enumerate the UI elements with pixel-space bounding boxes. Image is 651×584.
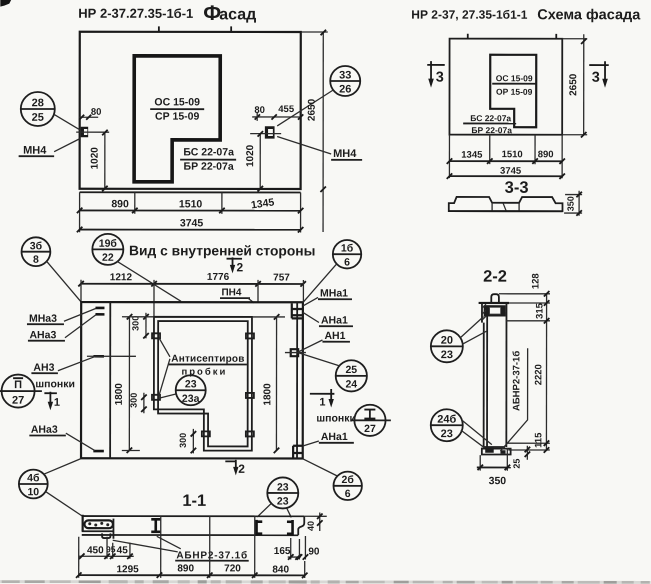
svg-text:315: 315	[534, 302, 545, 319]
svg-text:350: 350	[489, 475, 507, 487]
svg-text:2220: 2220	[533, 364, 544, 385]
svg-text:Антисептиров: Антисептиров	[171, 354, 244, 365]
svg-text:1б: 1б	[341, 243, 354, 255]
svg-text:1345: 1345	[461, 150, 483, 161]
svg-text:АБНР2-37-1б: АБНР2-37-1б	[511, 351, 522, 411]
svg-text:МНа1: МНа1	[320, 287, 348, 299]
svg-text:45: 45	[117, 545, 129, 556]
svg-text:2-2: 2-2	[483, 268, 507, 286]
svg-text:2: 2	[238, 462, 245, 476]
svg-text:4б: 4б	[27, 472, 40, 484]
svg-text:СР 15-09: СР 15-09	[155, 111, 200, 123]
svg-text:БС 22-07а: БС 22-07а	[183, 146, 234, 158]
svg-text:24б: 24б	[437, 414, 456, 426]
svg-text:1510: 1510	[179, 198, 203, 210]
svg-text:НР 2-37, 27.35-1б1-1: НР 2-37, 27.35-1б1-1	[411, 8, 527, 22]
svg-text:1510: 1510	[502, 149, 523, 160]
svg-text:ОР 15-09: ОР 15-09	[496, 87, 533, 97]
svg-text:АНа3: АНа3	[31, 424, 58, 436]
svg-text:3: 3	[592, 70, 600, 86]
svg-text:АН1: АН1	[324, 330, 345, 342]
svg-text:128: 128	[531, 273, 542, 289]
svg-text:890: 890	[177, 563, 194, 574]
svg-text:115: 115	[533, 432, 544, 448]
svg-text:ПН4: ПН4	[221, 287, 241, 298]
svg-text:ОС 15-09: ОС 15-09	[496, 73, 533, 83]
svg-text:840: 840	[272, 564, 289, 575]
svg-text:2: 2	[237, 260, 244, 274]
svg-text:1020: 1020	[245, 144, 256, 167]
svg-text:20: 20	[441, 335, 453, 347]
svg-text:1800: 1800	[114, 383, 125, 406]
svg-text:3745: 3745	[500, 166, 522, 177]
svg-text:23: 23	[277, 495, 289, 507]
svg-text:МН4: МН4	[333, 148, 357, 160]
svg-text:АН3: АН3	[33, 362, 54, 374]
svg-text:6: 6	[345, 488, 351, 500]
svg-text:90: 90	[308, 546, 320, 557]
svg-text:757: 757	[273, 272, 290, 283]
svg-text:23: 23	[185, 378, 197, 390]
svg-text:720: 720	[224, 563, 241, 574]
svg-text:27: 27	[364, 423, 376, 435]
svg-text:3б: 3б	[30, 240, 43, 252]
svg-text:2650: 2650	[568, 73, 579, 96]
svg-text:П: П	[14, 379, 22, 391]
svg-text:25: 25	[512, 459, 522, 469]
svg-text:23а: 23а	[182, 393, 200, 405]
svg-text:шпонки: шпонки	[35, 378, 75, 390]
svg-text:300: 300	[130, 316, 140, 331]
svg-text:2б: 2б	[342, 474, 355, 486]
svg-text:1212: 1212	[110, 272, 133, 283]
svg-text:БР 22-07а: БР 22-07а	[471, 125, 512, 135]
svg-text:23: 23	[441, 428, 453, 440]
svg-text:асад: асад	[219, 6, 256, 23]
svg-text:1776: 1776	[207, 272, 230, 283]
svg-text:350: 350	[566, 196, 576, 211]
svg-text:1345: 1345	[250, 196, 275, 211]
svg-text:23: 23	[441, 349, 453, 361]
svg-text:3: 3	[436, 70, 444, 86]
svg-text:1020: 1020	[90, 147, 101, 170]
svg-text:455: 455	[278, 104, 295, 115]
svg-text:10: 10	[27, 486, 39, 498]
svg-text:АНа1: АНа1	[321, 314, 348, 326]
svg-text:БР 22-07а: БР 22-07а	[184, 161, 234, 173]
svg-text:1-1: 1-1	[182, 492, 206, 510]
svg-text:24: 24	[345, 379, 357, 391]
svg-text:МН4: МН4	[23, 145, 47, 157]
svg-text:Вид с внутренней стороны: Вид с внутренней стороны	[129, 243, 315, 258]
svg-text:25: 25	[32, 112, 44, 124]
svg-text:450: 450	[87, 545, 104, 556]
svg-text:2650: 2650	[307, 98, 318, 121]
svg-text:АБНР2-37.1б: АБНР2-37.1б	[176, 549, 248, 561]
svg-text:890: 890	[538, 149, 554, 160]
svg-text:27: 27	[12, 395, 24, 407]
svg-text:3745: 3745	[180, 217, 204, 229]
svg-text:33: 33	[339, 70, 351, 82]
svg-text:23: 23	[277, 481, 289, 493]
svg-text:28: 28	[32, 97, 44, 109]
svg-text:25: 25	[345, 364, 357, 376]
svg-text:300: 300	[178, 433, 188, 448]
svg-text:890: 890	[111, 198, 129, 210]
svg-text:6: 6	[344, 257, 350, 269]
svg-text:БС 22-07а: БС 22-07а	[470, 113, 511, 123]
svg-text:8: 8	[33, 254, 39, 266]
svg-text:40: 40	[306, 521, 316, 531]
svg-text:АНа1: АНа1	[321, 431, 348, 443]
svg-text:19б: 19б	[99, 238, 118, 250]
svg-text:ОС 15-09: ОС 15-09	[154, 96, 200, 108]
svg-text:26: 26	[339, 84, 351, 96]
svg-text:1: 1	[54, 397, 60, 409]
svg-text:1800: 1800	[262, 383, 273, 406]
svg-text:МНа3: МНа3	[29, 313, 57, 325]
svg-text:НР 2-37.27.35-1б-1: НР 2-37.27.35-1б-1	[78, 6, 193, 21]
svg-text:АНа3: АНа3	[29, 329, 56, 341]
svg-text:1295: 1295	[116, 564, 139, 575]
svg-text:165: 165	[274, 546, 291, 557]
svg-text:шпонки: шпонки	[316, 412, 356, 424]
svg-text:1: 1	[319, 396, 325, 408]
svg-text:300: 300	[129, 393, 139, 408]
svg-text:Схема фасада: Схема фасада	[537, 7, 641, 23]
svg-text:80: 80	[91, 107, 102, 118]
svg-text:22: 22	[102, 252, 114, 264]
svg-text:3-3: 3-3	[505, 179, 529, 197]
